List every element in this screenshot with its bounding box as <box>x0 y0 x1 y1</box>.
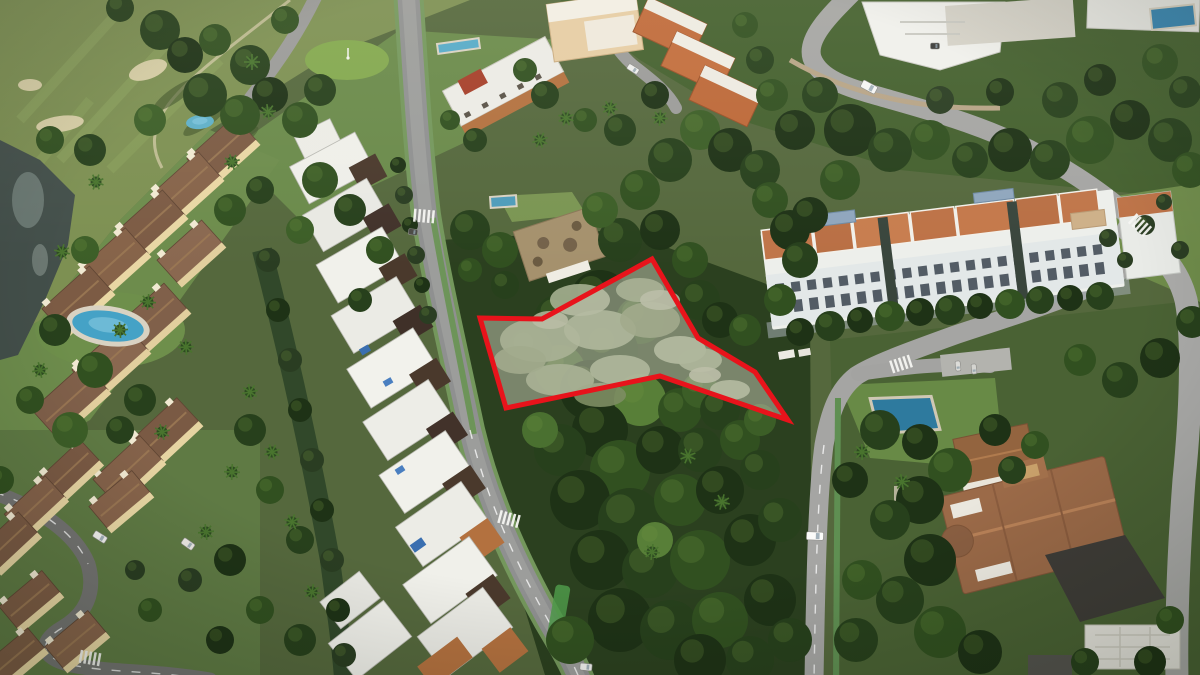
vignette <box>0 0 1200 675</box>
aerial-photo <box>0 0 1200 675</box>
aerial-photo-stage <box>0 0 1200 675</box>
